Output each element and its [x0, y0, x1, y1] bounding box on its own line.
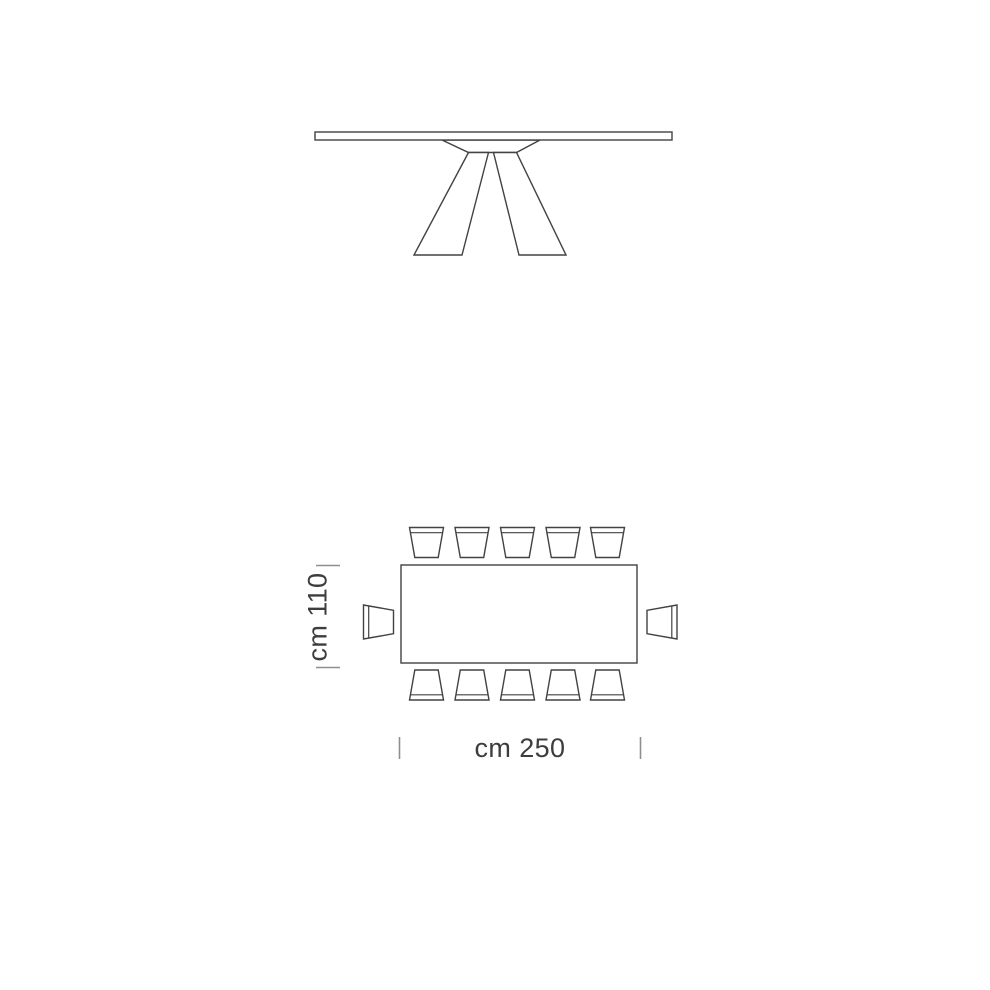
width-dimension-label: cm 250 [400, 732, 640, 764]
chair-top-3 [501, 528, 535, 558]
chair-bottom-2 [455, 670, 489, 700]
left-leg-front [414, 153, 489, 256]
diagram-canvas [0, 0, 990, 990]
chair-bottom-5 [591, 670, 625, 700]
right-leg-front [494, 153, 567, 256]
table-front-view [315, 132, 672, 255]
chair-top-4 [546, 528, 580, 558]
table-plan-view [316, 528, 677, 760]
dimension-diagram: cm 110 cm 250 [0, 0, 990, 990]
tabletop-front [315, 132, 672, 140]
chair-right-end [647, 605, 677, 639]
depth-dimension-label: cm 110 [303, 573, 334, 662]
chair-top-1 [410, 528, 444, 558]
chair-bottom-4 [546, 670, 580, 700]
chair-left-end [364, 605, 394, 639]
chair-bottom-3 [501, 670, 535, 700]
chair-top-2 [455, 528, 489, 558]
pedestal-front [442, 140, 540, 153]
chair-bottom-1 [410, 670, 444, 700]
chair-top-5 [591, 528, 625, 558]
plan-table-outline [401, 565, 637, 663]
